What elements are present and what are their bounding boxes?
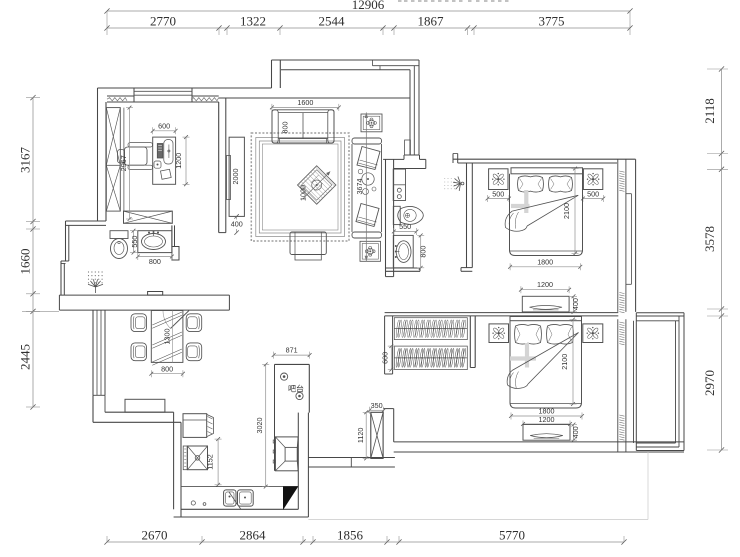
svg-text:2864: 2864 <box>240 528 267 543</box>
svg-text:550: 550 <box>399 222 411 231</box>
svg-text:1600: 1600 <box>297 98 313 107</box>
svg-text:500: 500 <box>492 190 504 199</box>
svg-text:3020: 3020 <box>255 418 264 434</box>
svg-text:1200: 1200 <box>539 415 555 424</box>
svg-text:3167: 3167 <box>18 147 33 174</box>
svg-text:2000: 2000 <box>231 169 240 185</box>
svg-text:2970: 2970 <box>702 370 717 396</box>
svg-text:1000: 1000 <box>299 185 308 201</box>
svg-text:2445: 2445 <box>18 344 33 370</box>
svg-text:800: 800 <box>161 364 173 373</box>
svg-text:3775: 3775 <box>539 14 565 29</box>
svg-text:1300: 1300 <box>163 329 172 345</box>
svg-text:1867: 1867 <box>418 14 445 29</box>
svg-text:1322: 1322 <box>240 14 266 29</box>
svg-text:1660: 1660 <box>18 249 33 275</box>
svg-text:2544: 2544 <box>319 14 346 29</box>
svg-text:800: 800 <box>149 257 161 266</box>
svg-text:3578: 3578 <box>702 226 717 252</box>
svg-text:3674: 3674 <box>355 179 364 195</box>
svg-text:800: 800 <box>281 122 290 134</box>
svg-text:2100: 2100 <box>560 354 569 370</box>
svg-text:2100: 2100 <box>562 203 571 219</box>
svg-text:600: 600 <box>158 121 170 130</box>
svg-text:1856: 1856 <box>337 528 364 543</box>
svg-text:871: 871 <box>286 346 298 355</box>
svg-text:400: 400 <box>571 426 580 438</box>
svg-text:800: 800 <box>419 246 428 258</box>
svg-text:2967: 2967 <box>119 155 128 171</box>
svg-text:400: 400 <box>231 220 243 229</box>
svg-text:500: 500 <box>587 190 599 199</box>
svg-text:2118: 2118 <box>702 98 717 124</box>
svg-text:600: 600 <box>381 352 390 364</box>
svg-text:1152: 1152 <box>205 454 214 469</box>
svg-text:1120: 1120 <box>356 428 365 443</box>
svg-text:吧台: 吧台 <box>288 384 304 394</box>
svg-text:1800: 1800 <box>537 257 553 266</box>
svg-text:5770: 5770 <box>499 528 525 543</box>
svg-text:1200: 1200 <box>174 153 183 169</box>
svg-text:350: 350 <box>371 401 383 410</box>
svg-text:2670: 2670 <box>142 528 168 543</box>
svg-text:2770: 2770 <box>150 14 176 29</box>
svg-text:1200: 1200 <box>537 280 553 289</box>
svg-text:12906: 12906 <box>352 0 385 12</box>
svg-text:400: 400 <box>571 298 580 310</box>
